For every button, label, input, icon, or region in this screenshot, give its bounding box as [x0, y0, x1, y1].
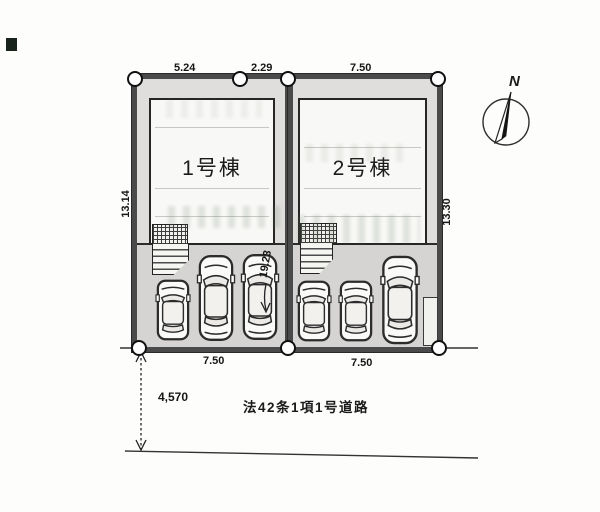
north-label: N [509, 73, 521, 90]
dim-label-right-13-30: 13.30 [441, 198, 453, 226]
dim-label-top-5-24: 5.24 [174, 62, 195, 74]
bleed-through-smudge [166, 100, 262, 118]
building-2-floor-line [304, 188, 422, 189]
dim-label-top-2-29: 2.29 [251, 62, 272, 74]
car-icon [197, 252, 235, 344]
car-icon [297, 278, 331, 344]
survey-marker [430, 71, 446, 87]
bleed-through-smudge [168, 206, 280, 228]
dim-arrow [258, 282, 278, 316]
dim-label-road-width-4570: 4,570 [158, 390, 188, 404]
bleed-through-smudge [298, 215, 420, 243]
dim-label-left-13-14: 13.14 [120, 190, 132, 218]
building-1-floor-line [155, 188, 270, 189]
survey-marker [131, 340, 147, 356]
survey-marker [127, 71, 143, 87]
compass-icon: N [478, 70, 538, 166]
car-icon [156, 277, 190, 343]
survey-marker [280, 71, 296, 87]
building-1-floor-line [155, 127, 270, 128]
survey-marker [232, 71, 248, 87]
road-name-label: 法42条1項1号道路 [243, 396, 369, 416]
car-icon [380, 255, 420, 345]
lot-2-side-strip [423, 297, 438, 346]
dim-label-bottom-right-7-50: 7.50 [351, 357, 372, 369]
car-icon [339, 278, 373, 344]
building-1-label: 1号棟 [151, 152, 273, 182]
dim-label-bottom-left-7-50: 7.50 [203, 355, 224, 367]
survey-marker [280, 340, 296, 356]
survey-marker [431, 340, 447, 356]
bleed-through-smudge [306, 144, 406, 162]
dim-label-top-7-50: 7.50 [350, 62, 371, 74]
site-plan-canvas: 1号棟 2号棟 5.24 2.29 7.50 13.14 13.30 19.23 [0, 0, 600, 512]
